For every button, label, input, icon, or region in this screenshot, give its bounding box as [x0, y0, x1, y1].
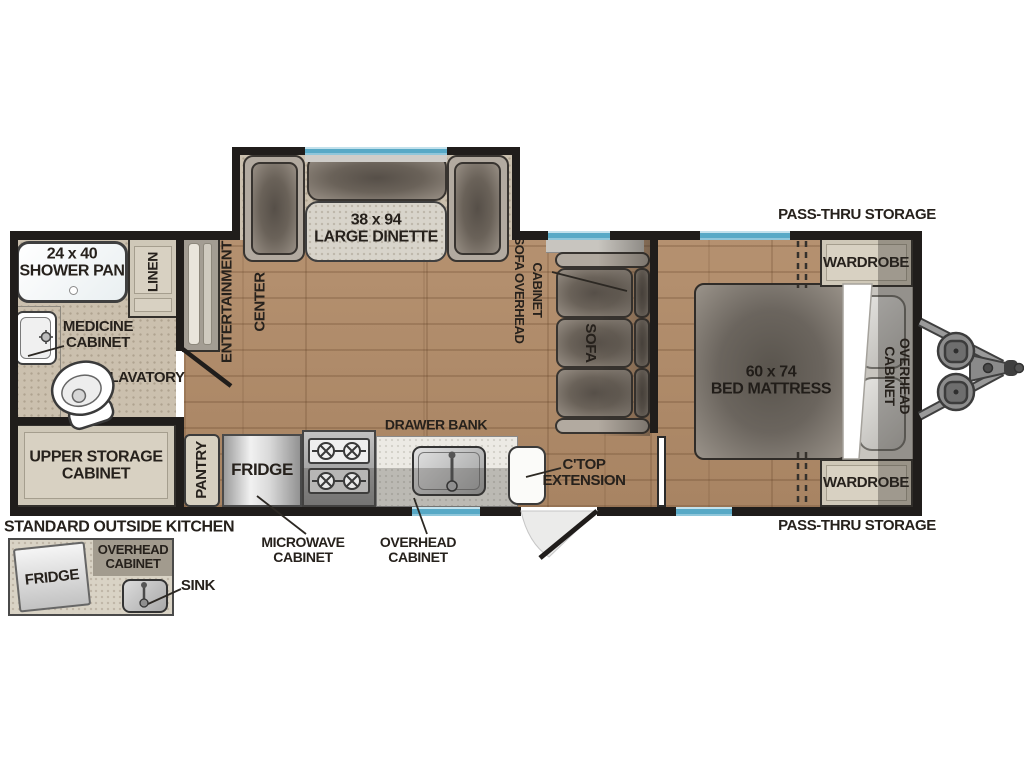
galley-divider-wall — [176, 417, 184, 516]
propane-tanks — [938, 333, 974, 410]
pass-thru-storage-bottom-label: PASS-THRU STORAGE — [778, 518, 936, 534]
pass-thru-storage-top-label: PASS-THRU STORAGE — [778, 207, 936, 223]
slideout-wall-right — [512, 147, 520, 240]
wall-right-front — [913, 231, 922, 516]
pantry — [184, 434, 220, 507]
outside-overhead-cabinet — [93, 540, 172, 576]
bathroom-wall-horizontal — [10, 417, 184, 425]
dinette-window-sill — [305, 155, 447, 162]
outside-fridge — [13, 541, 91, 612]
shower-drain — [69, 286, 78, 295]
trailer-hitch — [920, 322, 1024, 416]
window-dinette — [305, 147, 447, 155]
entry-door — [521, 511, 597, 558]
bedroom-wall — [650, 231, 658, 433]
outside-sink — [122, 579, 168, 613]
slideout-wall-left — [232, 147, 240, 240]
hitch-coupler — [1004, 360, 1018, 376]
bath-sink-basin — [20, 317, 51, 359]
floor-plan: 24 x 40 SHOWER PAN LINEN MEDICINE CABINE… — [0, 0, 1024, 768]
window-bedroom-bottom — [676, 507, 732, 516]
entertainment-center-door2 — [203, 243, 212, 345]
window-sofa — [548, 231, 610, 240]
bedroom-overhead-shadow — [878, 240, 913, 507]
window-bedroom-top — [700, 231, 790, 240]
wall-top-left — [10, 231, 234, 240]
dinette-bench-right-cushion — [454, 162, 501, 255]
outside-kitchen-title: STANDARD OUTSIDE KITCHEN — [4, 518, 234, 535]
sofa-overhead-shadow — [598, 240, 650, 436]
upper-storage-cabinet-panel — [24, 432, 168, 499]
wall-bottom-right — [597, 507, 922, 516]
stove-top-panel — [308, 438, 370, 464]
bedroom-door-panel — [657, 436, 666, 507]
wall-left — [10, 231, 18, 516]
bathroom-wall-vertical — [176, 231, 184, 351]
overhead-cabinet-kitchen-label: OVERHEAD CABINET — [380, 535, 456, 565]
dinette-table — [305, 201, 447, 262]
kitchen-fridge — [222, 434, 302, 507]
kitchen-overhead-shadow — [302, 468, 518, 507]
entertainment-center-door — [188, 243, 200, 345]
microwave-cabinet-label: MICROWAVE CABINET — [261, 535, 344, 565]
tongue-jack — [984, 364, 993, 373]
linen-closet-panel — [134, 246, 172, 294]
countertop-extension — [508, 446, 546, 505]
window-kitchen — [412, 507, 480, 516]
linen-closet-drawer — [134, 298, 172, 312]
bed-mattress — [694, 283, 848, 460]
outside-sink-label: SINK — [181, 578, 215, 594]
dinette-bench-left-cushion — [251, 162, 298, 255]
